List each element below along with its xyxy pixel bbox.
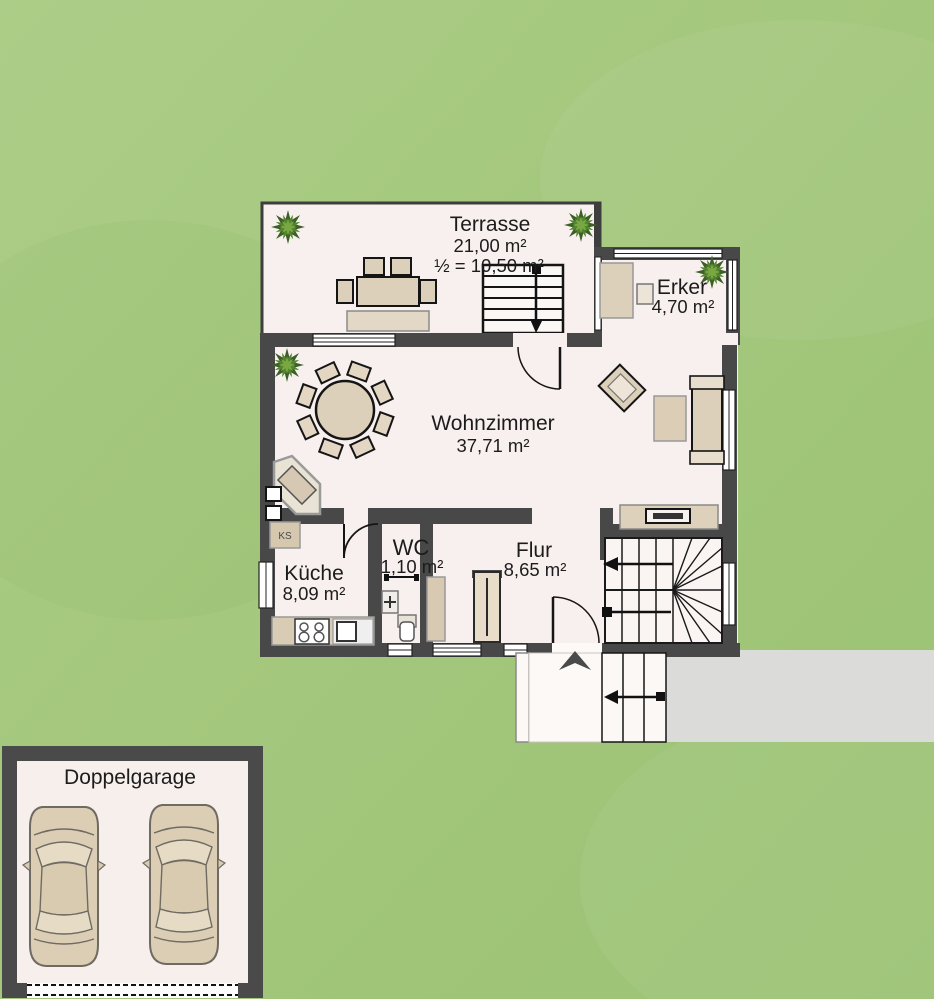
sofa	[690, 376, 724, 464]
coffee-table	[654, 396, 686, 441]
window	[313, 334, 395, 346]
room-label-terrasse: Terrasse	[450, 213, 531, 236]
outside-steps	[602, 653, 666, 742]
toilet	[398, 615, 416, 641]
tv-sideboard	[620, 505, 718, 529]
walkway-path	[655, 650, 934, 742]
hall-cabinet	[472, 570, 502, 642]
stove	[295, 619, 329, 644]
room-label-kueche: Küche	[284, 562, 344, 585]
room-area-erker: 4,70 m²	[652, 296, 715, 317]
room-label-garage: Doppelgarage	[64, 766, 196, 789]
room-area-kueche: 8,09 m²	[283, 583, 346, 604]
wardrobe	[427, 577, 445, 641]
round-dining-table	[316, 381, 374, 439]
room-area-flur: 8,65 m²	[504, 559, 567, 580]
sink	[333, 619, 373, 644]
car-top-view	[23, 807, 105, 966]
floor-plan: Terrasse 21,00 m² ½ = 10,50 m² Erker 4,7…	[0, 0, 934, 999]
room-area-terrasse: 21,00 m²	[453, 235, 526, 256]
window	[433, 644, 481, 656]
room-area-wohnzimmer: 37,71 m²	[456, 435, 529, 456]
entrance-area	[516, 651, 666, 742]
terrace-bench	[347, 311, 429, 331]
desk-chair	[637, 284, 653, 304]
staircase	[602, 538, 722, 643]
fridge-label: KS	[278, 531, 292, 542]
hand-basin	[382, 591, 398, 613]
room-label-wohnzimmer: Wohnzimmer	[431, 412, 554, 435]
terrace	[262, 203, 601, 335]
car-top-view	[143, 805, 225, 964]
room-area-wc: 1,10 m²	[381, 556, 444, 577]
desk	[600, 263, 633, 318]
floor-plan-canvas: Terrasse 21,00 m² ½ = 10,50 m² Erker 4,7…	[0, 0, 934, 999]
room-halfarea-terrasse: ½ = 10,50 m²	[434, 255, 544, 276]
garage-door	[27, 983, 238, 998]
